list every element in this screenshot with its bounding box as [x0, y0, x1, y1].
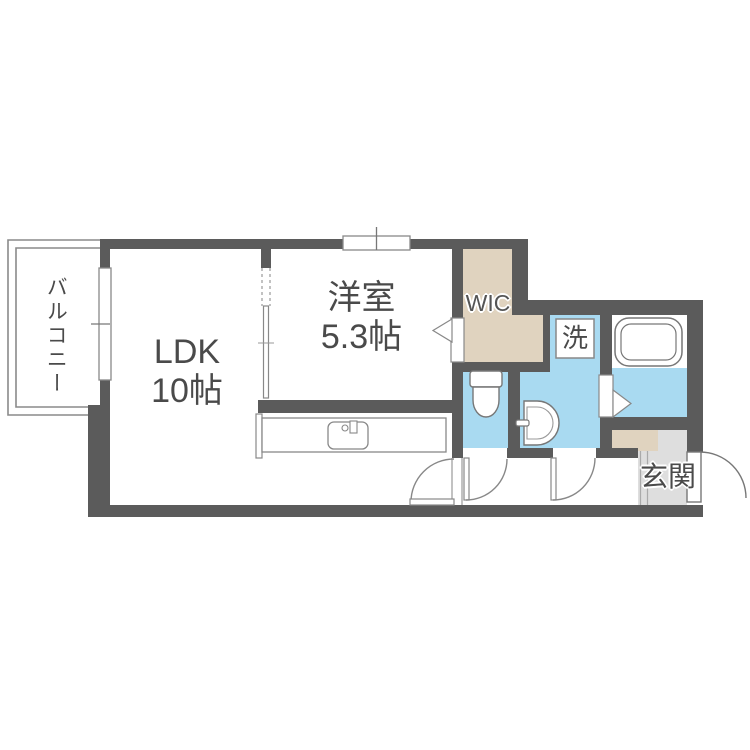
laundry-label: 洗 [556, 319, 594, 358]
balcony-label: バルコニー [40, 266, 70, 406]
ldk-name: LDK [108, 333, 266, 372]
entrance-step [611, 430, 658, 451]
entrance-label-text: 玄関 [640, 461, 696, 492]
floorplan: バルコニー LDK 10帖 洋室 5.3帖 WIC 洗 玄関 [0, 0, 750, 750]
balcony-label-text: バルコニー [43, 276, 67, 396]
washroom-door [551, 448, 596, 500]
wic-label: WIC [458, 290, 518, 317]
entrance-label: 玄関 [629, 461, 707, 493]
toilet-icon [470, 371, 502, 417]
laundry-label-text: 洗 [562, 323, 588, 353]
ldk-hall-door [410, 458, 464, 505]
kitchen-counter [256, 414, 446, 458]
bathtub-icon [615, 318, 682, 366]
western-room-label: 洋室 5.3帖 [271, 279, 452, 358]
western-room-size: 5.3帖 [271, 318, 452, 357]
wic-label-text: WIC [466, 290, 511, 316]
western-room-name: 洋室 [271, 279, 452, 318]
ldk-label: LDK 10帖 [108, 333, 266, 412]
toilet-door [464, 448, 507, 500]
ldk-size: 10帖 [108, 372, 266, 411]
